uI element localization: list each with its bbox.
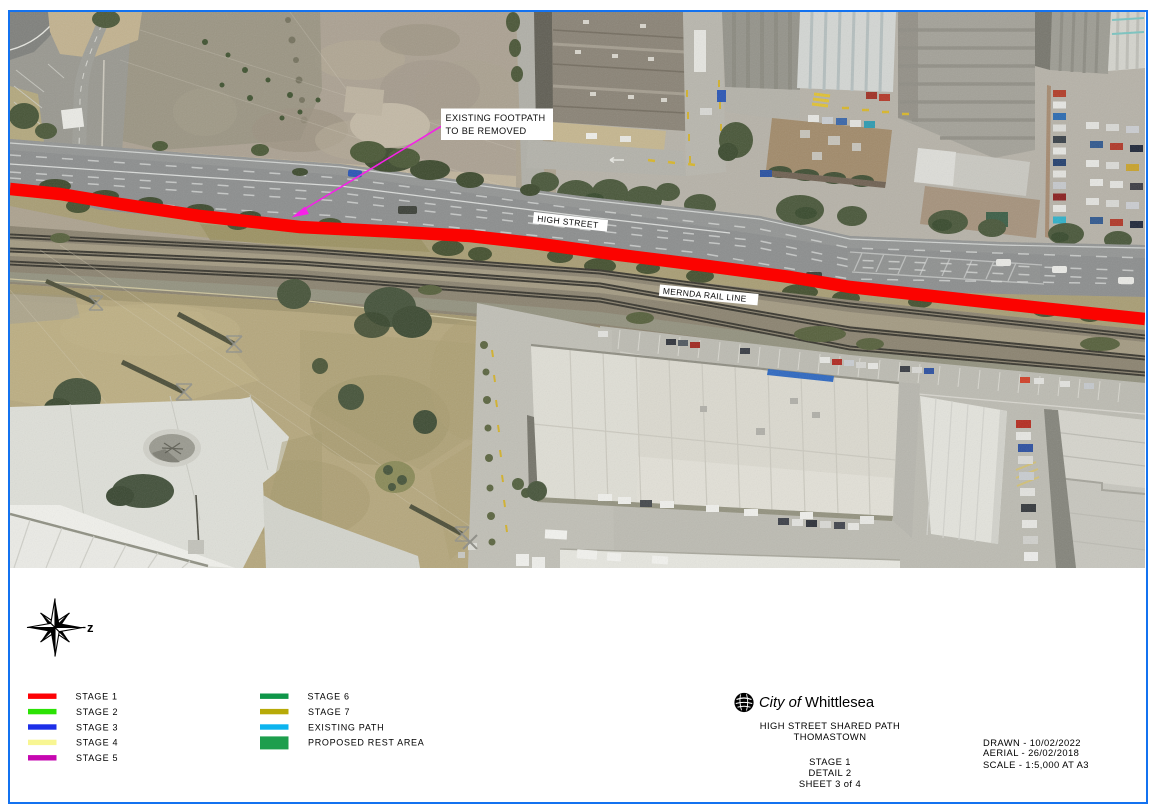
svg-text:STAGE 3: STAGE 3: [76, 722, 118, 732]
svg-text:STAGE 2: STAGE 2: [76, 707, 118, 717]
svg-text:STAGE 4: STAGE 4: [76, 738, 118, 748]
svg-text:STAGE 6: STAGE 6: [308, 692, 350, 702]
svg-text:PROPOSED REST AREA: PROPOSED REST AREA: [308, 738, 424, 748]
svg-text:EXISTING FOOTPATH: EXISTING FOOTPATH: [446, 113, 546, 123]
svg-text:STAGE 7: STAGE 7: [308, 707, 350, 717]
svg-text:EXISTING PATH: EXISTING PATH: [308, 722, 384, 732]
svg-text:STAGE 5: STAGE 5: [76, 753, 118, 763]
svg-text:z: z: [87, 620, 94, 635]
svg-text:TO BE REMOVED: TO BE REMOVED: [446, 126, 527, 136]
svg-text:STAGE 1: STAGE 1: [76, 692, 118, 702]
